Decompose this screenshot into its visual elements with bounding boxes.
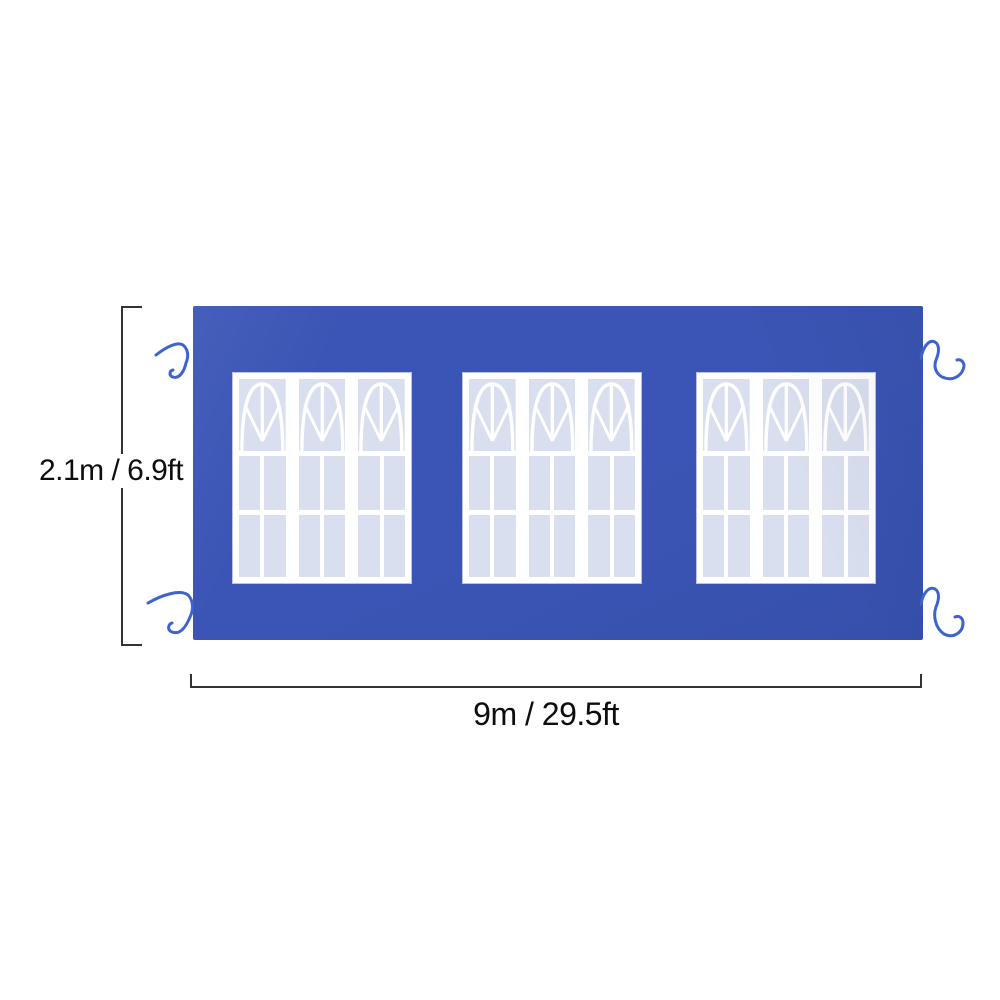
window-pane [264, 515, 285, 577]
window-panel [239, 379, 286, 577]
window-pane [469, 515, 490, 577]
window-pane-row [822, 456, 869, 510]
window-pane [384, 515, 405, 577]
window-pane [494, 515, 515, 577]
height-dimension-cap-bottom [121, 644, 142, 646]
window-pane-row [469, 456, 516, 510]
window-pane-row [763, 456, 810, 510]
corner-tie-bottom-left [146, 586, 196, 640]
window-pane [763, 456, 784, 510]
window-panel [469, 379, 516, 577]
window-panel [299, 379, 346, 577]
arched-fan-pane [703, 379, 750, 451]
window-pane-row [299, 515, 346, 577]
width-dimension-line [190, 686, 922, 688]
corner-tie-bottom-right [919, 583, 967, 641]
arched-fan-pane [588, 379, 635, 451]
window-pane [822, 515, 843, 577]
window-pane-row [529, 515, 576, 577]
window-pane-row [822, 515, 869, 577]
window-pane-row [239, 515, 286, 577]
window-pane [848, 456, 869, 510]
window-pane [763, 515, 784, 577]
corner-tie-top-left [153, 336, 195, 386]
height-dimension-cap-top [121, 306, 142, 308]
arched-fan-pane [763, 379, 810, 451]
window-pane [324, 515, 345, 577]
window-pane [358, 456, 379, 510]
window-pane [703, 515, 724, 577]
window-pane [788, 456, 809, 510]
window-pane [469, 456, 490, 510]
window-pane [299, 456, 320, 510]
window-panel [529, 379, 576, 577]
window-pane-row [763, 515, 810, 577]
window-pane-row [703, 515, 750, 577]
window-pane [703, 456, 724, 510]
window-pane [614, 515, 635, 577]
window-pane-row [358, 456, 405, 510]
window-pane [728, 456, 749, 510]
window-pane [614, 456, 635, 510]
window-pane-row [703, 456, 750, 510]
window-pane [822, 456, 843, 510]
window-pane-row [588, 515, 635, 577]
arched-fan-pane [822, 379, 869, 451]
arched-fan-pane [239, 379, 286, 451]
arched-fan-pane [299, 379, 346, 451]
corner-tie-top-right [919, 332, 967, 384]
window-pane [239, 515, 260, 577]
window-pane-row [239, 456, 286, 510]
window-pane [588, 456, 609, 510]
window-pane-row [529, 456, 576, 510]
window [233, 373, 411, 583]
window-panel [703, 379, 750, 577]
window-pane [848, 515, 869, 577]
window-pane [554, 515, 575, 577]
window-pane [358, 515, 379, 577]
window-pane [529, 456, 550, 510]
sidewall-panel [193, 306, 923, 640]
diagram-canvas: 2.1m / 6.9ft 9m / 29.5ft [0, 0, 1000, 1000]
window-pane [788, 515, 809, 577]
window-pane-row [588, 456, 635, 510]
arched-fan-pane [358, 379, 405, 451]
window-panel [822, 379, 869, 577]
window-pane [384, 456, 405, 510]
window-pane [264, 456, 285, 510]
window-pane [494, 456, 515, 510]
window-pane-row [469, 515, 516, 577]
window-pane [529, 515, 550, 577]
window-pane-row [358, 515, 405, 577]
height-dimension-label: 2.1m / 6.9ft [34, 454, 188, 488]
window [697, 373, 875, 583]
arched-fan-pane [469, 379, 516, 451]
window-pane [299, 515, 320, 577]
arched-fan-pane [529, 379, 576, 451]
window-pane [554, 456, 575, 510]
window-pane [239, 456, 260, 510]
width-dimension-cap-left [190, 674, 192, 688]
window-pane-row [299, 456, 346, 510]
window-panel [763, 379, 810, 577]
window-pane [588, 515, 609, 577]
window-panel [588, 379, 635, 577]
width-dimension-cap-right [920, 674, 922, 688]
window [463, 373, 641, 583]
window-pane [324, 456, 345, 510]
width-dimension-label: 9m / 29.5ft [468, 696, 624, 732]
window-pane [728, 515, 749, 577]
window-panel [358, 379, 405, 577]
